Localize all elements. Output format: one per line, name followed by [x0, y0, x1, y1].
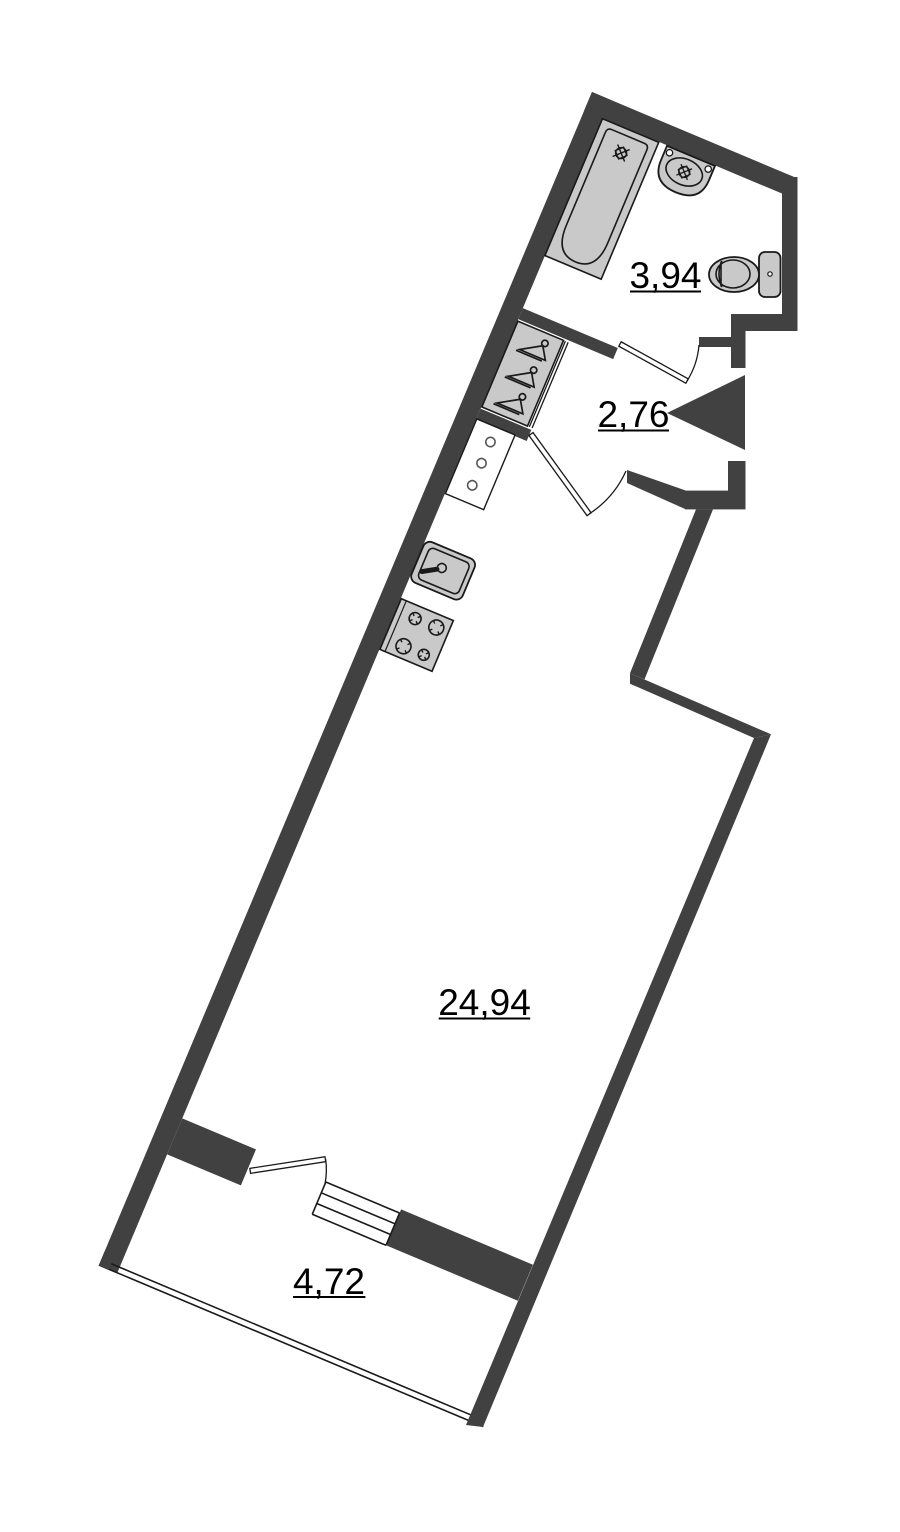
svg-text:24,94: 24,94	[438, 982, 531, 1023]
svg-text:4,72: 4,72	[293, 1261, 365, 1302]
svg-text:2,76: 2,76	[597, 394, 669, 435]
svg-text:3,94: 3,94	[629, 255, 701, 296]
